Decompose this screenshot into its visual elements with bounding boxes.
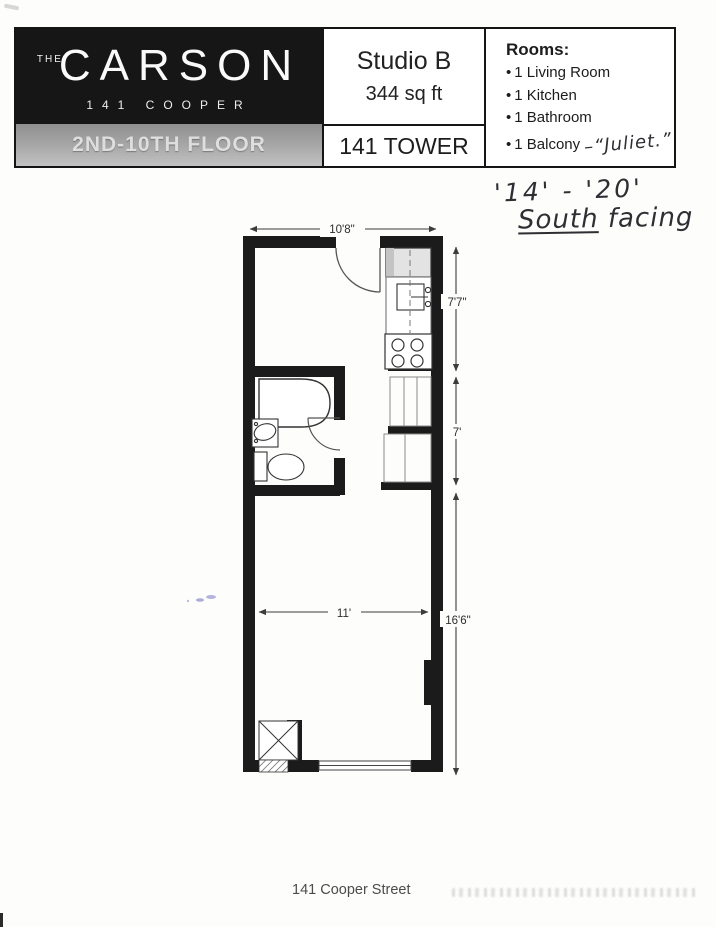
header-table: THE CARSON 141 COOPER 2ND-10TH FLOOR Stu… xyxy=(14,27,676,168)
rooms-panel: Rooms: 1 Living Room 1 Kitchen 1 Bathroo… xyxy=(484,29,678,166)
unit-cell: Studio B 344 sq ft xyxy=(322,29,484,124)
handwritten-facing-note: South facing xyxy=(518,202,694,235)
unit-area: 344 sq ft xyxy=(366,83,443,106)
closet-lower xyxy=(384,434,431,482)
scan-edge-mark xyxy=(0,913,3,927)
rooms-list: 1 Living Room 1 Kitchen 1 Bathroom 1 Bal… xyxy=(506,62,674,157)
room-item-balcony-label: 1 Balcony xyxy=(514,136,580,153)
shaft xyxy=(259,721,298,760)
illegible-faded-text xyxy=(452,888,696,897)
tower-label: 141 TOWER xyxy=(322,124,484,166)
dim-top-width: 10'8" xyxy=(329,224,354,236)
floor-plan: 10'8" 7'7" 7' 16'6" 11' xyxy=(180,215,480,815)
handwritten-juliet-note: –“Juliet.” xyxy=(583,126,673,161)
handwritten-floor-range: '14' - '20' xyxy=(494,173,644,207)
dim-living-width: 11' xyxy=(337,608,351,620)
room-item-living: 1 Living Room xyxy=(506,62,674,85)
logo-line: THE CARSON xyxy=(37,41,301,91)
room-item-bathroom: 1 Bathroom xyxy=(506,107,674,130)
entry-door xyxy=(336,248,380,292)
room-item-kitchen: 1 Kitchen xyxy=(506,85,674,108)
fridge xyxy=(386,248,431,277)
rooms-title: Rooms: xyxy=(506,40,674,60)
dim-living-depth: 16'6" xyxy=(445,615,470,627)
scan-smudge xyxy=(4,3,20,10)
bathroom-sink xyxy=(252,419,278,447)
dim-kitchen-depth: 7'7" xyxy=(447,297,466,309)
dim-closet-depth: 7' xyxy=(453,427,462,439)
balcony-window xyxy=(319,761,411,770)
floor-range-band: 2ND-10TH FLOOR xyxy=(16,124,322,166)
hatched-wall xyxy=(259,760,288,772)
footer-address: 141 Cooper Street xyxy=(292,882,411,898)
ink-smudge xyxy=(187,595,216,602)
room-item-balcony: 1 Balcony–“Juliet.” xyxy=(506,130,674,157)
unit-name: Studio B xyxy=(357,47,452,76)
carson-logo: THE CARSON 141 COOPER xyxy=(16,29,322,124)
logo-address: 141 COOPER xyxy=(86,98,251,112)
handwritten-facing-south: South xyxy=(518,204,599,235)
handwritten-facing-rest: facing xyxy=(598,202,693,234)
logo-name: CARSON xyxy=(59,41,301,91)
closet-upper xyxy=(390,377,431,426)
stove xyxy=(385,334,432,369)
toilet xyxy=(254,452,304,481)
